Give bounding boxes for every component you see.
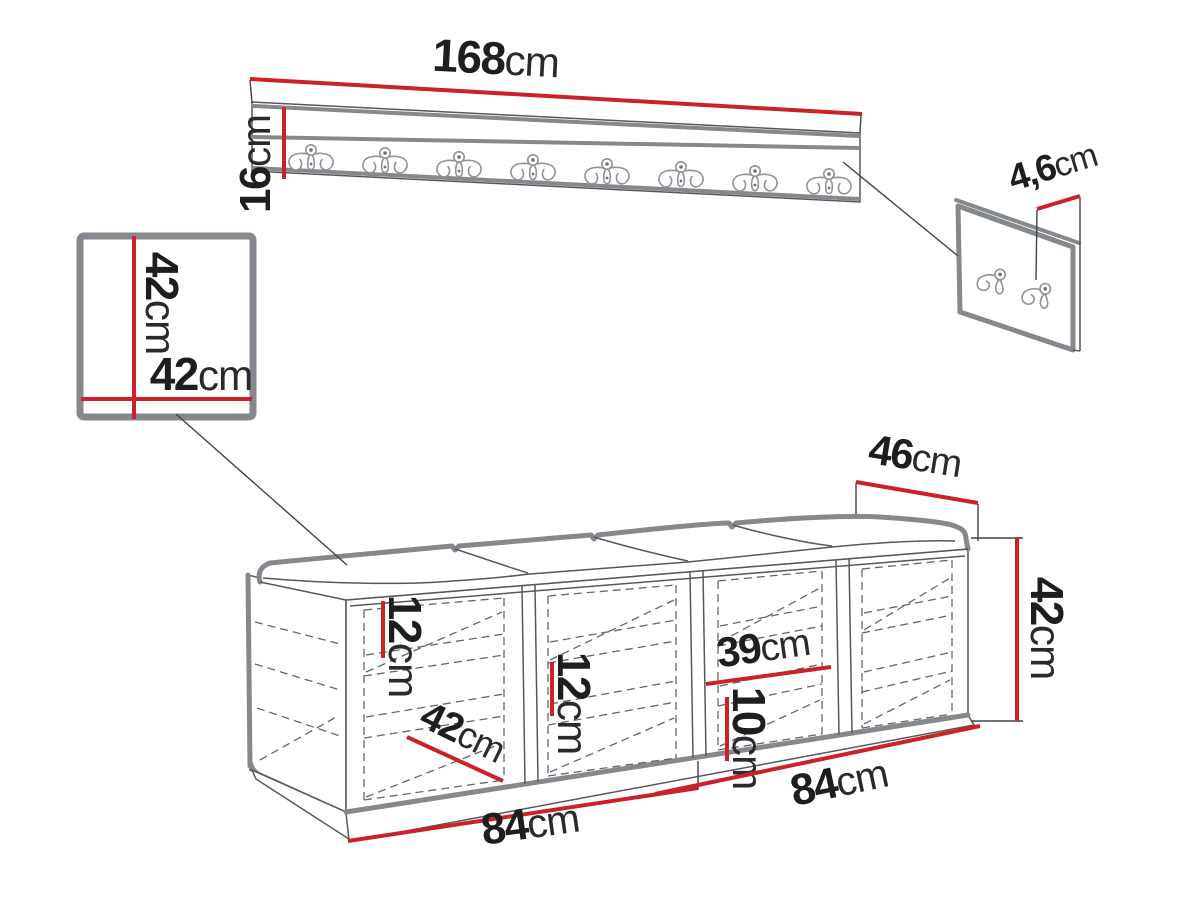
dim-shelf-gap-1: 12cm: [379, 595, 431, 698]
dim-rack-height: 16cm: [231, 107, 284, 213]
dim-panel-height-label: 42cm: [136, 252, 188, 355]
dim-hook-board-depth-label: 4,6cm: [1003, 133, 1101, 199]
furniture-dimension-diagram: 168cm 16cm 42cm 42cm 4,6cm 46cm: [0, 0, 1200, 900]
leader-panel-to-cushion: [176, 414, 347, 565]
hook-board-side-bottom: [1073, 350, 1080, 351]
dim-bench-half-right-label: 84cm: [786, 748, 892, 816]
dim-bench-depth-label: 46cm: [866, 425, 965, 486]
leader-lines: [176, 162, 958, 565]
dim-shelf-gap-1-label: 12cm: [379, 595, 431, 698]
dim-shelf-gap-2-label: 12cm: [548, 652, 600, 755]
dim-bench-depth-line: [856, 482, 978, 503]
dim-shelf-gap-2: 12cm: [548, 652, 600, 755]
diagram-canvas: 168cm 16cm 42cm 42cm 4,6cm 46cm: [0, 0, 1200, 900]
dim-panel-width-label: 42cm: [150, 348, 253, 400]
hook-board: [956, 200, 1080, 351]
dim-rack-height-label: 16cm: [231, 115, 280, 213]
bench-side-left-edge: [248, 575, 250, 766]
dim-bench-height: 42cm: [971, 537, 1073, 721]
hook-board-face: [958, 206, 1073, 350]
coat-rack-panel: [252, 102, 860, 202]
dim-rack-length-label: 168cm: [431, 29, 560, 88]
dim-bench-height-label: 42cm: [1021, 577, 1073, 680]
leader-rack-to-board: [843, 162, 958, 256]
dim-hook-board-depth-line: [1037, 196, 1080, 209]
